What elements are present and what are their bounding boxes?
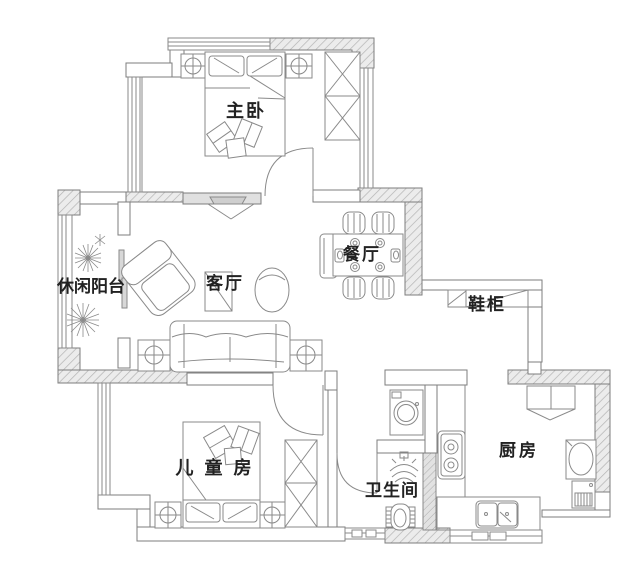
dining-chair bbox=[372, 277, 394, 299]
plant-icon bbox=[75, 244, 101, 272]
label-master-bedroom: 主卧 bbox=[226, 100, 266, 122]
label-kitchen: 厨房 bbox=[499, 440, 539, 461]
wall-laundry-niche-bottom bbox=[377, 440, 425, 453]
wall-balcony-divider-bottom bbox=[118, 338, 130, 368]
window-bedroom-top bbox=[168, 38, 270, 50]
wall-balcony-bottom bbox=[58, 370, 187, 383]
wall-kitchen-top bbox=[508, 370, 610, 384]
wall-kids-bottom bbox=[137, 527, 345, 541]
wall-kitchen-right bbox=[595, 384, 610, 492]
stove bbox=[438, 431, 465, 479]
wall-corridor-right-end bbox=[528, 362, 541, 374]
label-balcony: 休闲阳台 bbox=[56, 276, 125, 297]
wardrobe-kids bbox=[285, 440, 317, 527]
dining-chair bbox=[343, 212, 365, 234]
master-bedroom-furniture bbox=[181, 52, 360, 158]
window-bathroom-bottom bbox=[345, 528, 385, 539]
side-table-left bbox=[138, 340, 170, 371]
label-dining-room: 餐厅 bbox=[343, 244, 381, 265]
wall-dining-right bbox=[405, 202, 422, 295]
wall-bath-kitchen-top bbox=[385, 370, 467, 385]
washing-machine bbox=[390, 390, 423, 435]
wall-balcony-top-corner bbox=[58, 190, 80, 215]
window-bedroom-right bbox=[360, 68, 373, 188]
wall-kitchen-left bbox=[425, 385, 437, 453]
floor-plan-page: 主卧 休闲阳台 客厅 餐厅 鞋柜 儿童房 卫生间 厨房 bbox=[0, 0, 640, 588]
wall-kitchen-bottom-right bbox=[542, 510, 610, 517]
fridge bbox=[566, 440, 596, 479]
toilet bbox=[386, 504, 415, 530]
dining-chair bbox=[372, 212, 394, 234]
wall-kids-door-frame bbox=[325, 371, 337, 390]
wall-kids-step-horizontal bbox=[98, 495, 150, 509]
wall-bathroom-right-grey bbox=[423, 453, 436, 530]
label-kids-room: 儿童房 bbox=[175, 457, 263, 479]
wall-bedroom-right-base bbox=[358, 188, 422, 202]
label-living-room: 客厅 bbox=[205, 273, 244, 294]
bathroom-fixtures bbox=[386, 390, 423, 530]
wall-corridor-top bbox=[422, 280, 542, 290]
armchair bbox=[118, 237, 199, 319]
wall-balcony-divider-top bbox=[118, 202, 130, 235]
plant-sprig-icon bbox=[95, 234, 105, 246]
shower-spray-icon bbox=[390, 452, 418, 482]
wall-beside-bedroom-door bbox=[313, 190, 360, 202]
wall-bedroom-living bbox=[120, 192, 183, 202]
door-kids-room bbox=[273, 385, 323, 435]
wall-top-step-left bbox=[126, 63, 172, 77]
label-bathroom: 卫生间 bbox=[365, 480, 419, 501]
window-kitchen-bottom bbox=[450, 530, 542, 543]
wall-kids-step-vertical bbox=[137, 509, 150, 527]
floor-plan-drawing: 主卧 休闲阳台 客厅 餐厅 鞋柜 儿童房 卫生间 厨房 bbox=[0, 0, 640, 588]
wall-living-kids bbox=[187, 373, 273, 385]
side-table-right bbox=[290, 340, 322, 371]
wardrobe-master bbox=[325, 52, 360, 140]
nightstand-left bbox=[155, 502, 181, 528]
nightstand-right bbox=[260, 502, 285, 528]
label-shoe-cabinet: 鞋柜 bbox=[468, 294, 506, 315]
sofa bbox=[170, 321, 290, 372]
wall-corridor-right bbox=[528, 290, 542, 362]
dining-chair bbox=[343, 277, 365, 299]
nightstand-left bbox=[181, 54, 205, 78]
window-kids-left bbox=[98, 383, 110, 495]
floor-pouf bbox=[255, 268, 289, 312]
upper-cabinets bbox=[527, 386, 575, 420]
wall-kids-bath bbox=[328, 390, 337, 527]
sink bbox=[476, 501, 518, 528]
vent-unit bbox=[572, 481, 595, 508]
window-bedroom-left bbox=[128, 77, 142, 192]
nightstand-right bbox=[286, 54, 312, 78]
